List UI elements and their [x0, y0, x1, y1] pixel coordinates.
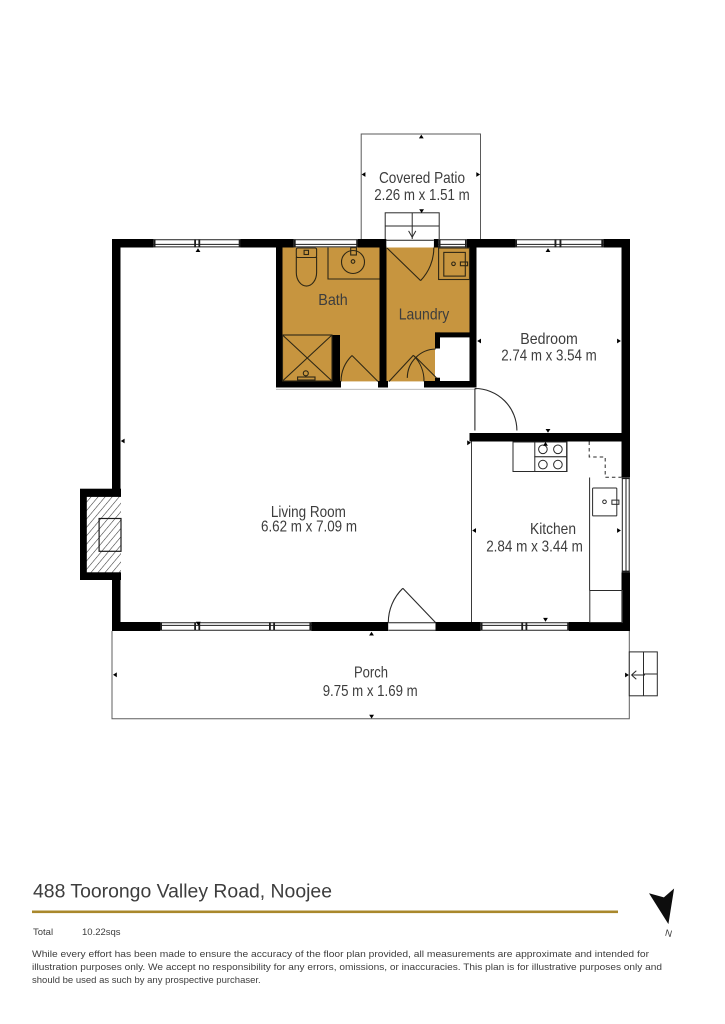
svg-text:2.74 m x 3.54 m: 2.74 m x 3.54 m — [501, 347, 597, 364]
svg-text:9.75 m x 1.69 m: 9.75 m x 1.69 m — [323, 683, 418, 700]
svg-text:10.22sqs: 10.22sqs — [82, 927, 121, 938]
svg-text:N: N — [664, 928, 673, 940]
svg-text:488 Toorongo Valley Road, Nooj: 488 Toorongo Valley Road, Noojee — [33, 882, 332, 903]
svg-text:Porch: Porch — [354, 665, 388, 682]
svg-text:2.26 m x 1.51 m: 2.26 m x 1.51 m — [374, 187, 470, 204]
svg-text:6.62 m x 7.09 m: 6.62 m x 7.09 m — [261, 519, 357, 536]
svg-text:Bath: Bath — [318, 292, 348, 309]
svg-text:should be used as such by any: should be used as such by any prospectiv… — [32, 975, 261, 986]
svg-text:Bedroom: Bedroom — [520, 331, 578, 348]
svg-text:Kitchen: Kitchen — [530, 521, 576, 538]
svg-text:Total: Total — [33, 927, 53, 938]
svg-text:While every effort has been ma: While every effort has been made to ensu… — [32, 949, 649, 960]
svg-text:illustration purposes only. We: illustration purposes only. We accept no… — [32, 962, 662, 973]
svg-text:Covered Patio: Covered Patio — [379, 170, 465, 187]
svg-text:2.84 m x 3.44 m: 2.84 m x 3.44 m — [486, 539, 583, 556]
svg-text:Laundry: Laundry — [399, 306, 450, 323]
